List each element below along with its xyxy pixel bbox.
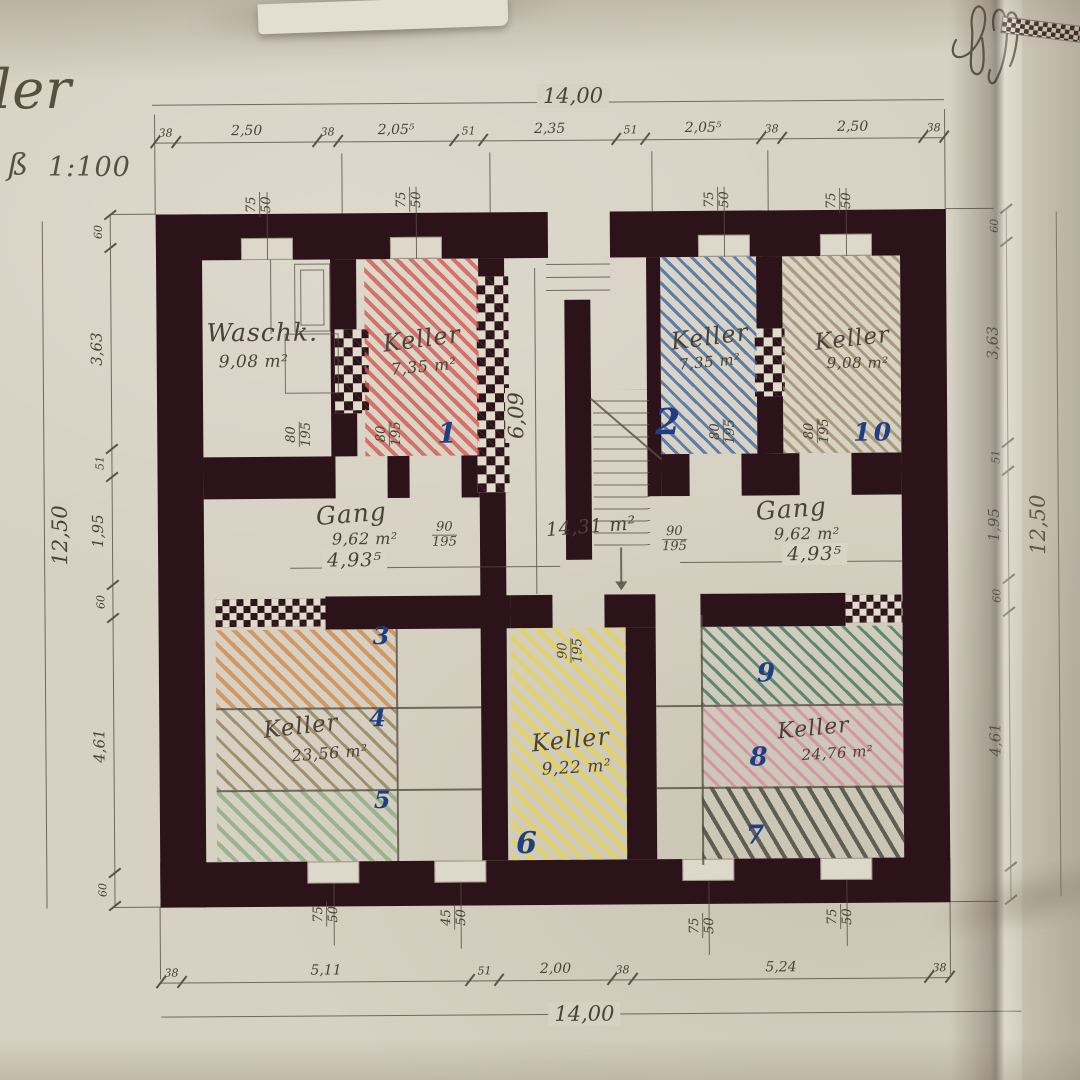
room-compartment-7-fill <box>702 785 904 858</box>
wall-mid-a <box>387 456 409 498</box>
dim-total-line-right <box>1056 211 1062 896</box>
witness-line <box>951 901 999 902</box>
dim-segment: 38 <box>929 961 950 978</box>
door-size-label: 80195 <box>375 421 405 446</box>
window-size-label: 7550 <box>688 913 718 938</box>
room-name: Gang <box>315 497 388 531</box>
wall-top-right <box>610 209 946 257</box>
window-size-label: 7550 <box>395 187 425 212</box>
dim-segment: 1,95 <box>96 477 114 585</box>
room-number: 2 <box>655 401 680 443</box>
dim-chain-right: 60 3,63 51 1,95 60 4,61 <box>990 209 1012 900</box>
window-niche <box>682 859 734 881</box>
witness-line <box>489 152 490 212</box>
dim-segment: 2,05⁵ <box>645 122 761 140</box>
room-area: 9,08 m² <box>219 352 289 372</box>
compartment-number: 7 <box>746 820 764 850</box>
door-size-label: 80195 <box>285 422 315 447</box>
gang-width-label: 4,93⁵ <box>782 543 847 565</box>
wall-mid-a <box>203 456 335 499</box>
witness-line <box>944 109 946 209</box>
window-size-label: 7550 <box>826 904 856 929</box>
stair-dim-label: 6,09 <box>505 388 528 443</box>
dim-segment: 2,50 <box>782 121 923 139</box>
dim-segment: 2,35 <box>483 123 616 141</box>
wall-mid-b <box>700 593 845 627</box>
wall-mid-b <box>325 595 510 629</box>
scanned-floor-plan-sheet: ler ß 1:100 <box>0 0 1080 1080</box>
room-area: 9,62 m² <box>774 524 840 543</box>
witness-line <box>651 151 652 211</box>
room-area: 9,08 m² <box>827 354 889 372</box>
dim-chain-bottom: 38 5,11 51 2,00 38 5,24 38 <box>161 961 950 984</box>
wall-mid-a <box>741 453 799 495</box>
dim-segment: 2,00 <box>499 964 612 982</box>
room-number: 6 <box>516 826 537 861</box>
stair-walkline <box>620 547 622 583</box>
dim-segment: 38 <box>923 121 944 138</box>
floor-plan: 6,09 Waschk. 9,08 m² Keller 7,35 m² 1 14… <box>0 0 1080 1080</box>
dim-segment: 51 <box>454 124 483 141</box>
window-niche <box>307 861 359 883</box>
compartment-number: 8 <box>749 742 767 772</box>
dim-segment: 3,63 <box>94 248 112 449</box>
dim-segment: 4,61 <box>97 618 116 873</box>
dim-segment: 2,05⁵ <box>338 125 454 143</box>
flue-block <box>476 276 510 492</box>
stair-entry-step <box>546 290 610 291</box>
room-area: 9,22 m² <box>541 756 612 780</box>
slat-wall <box>845 594 902 622</box>
dim-chain-left: 60 3,63 51 1,95 60 4,61 60 <box>94 215 116 906</box>
dim-segment: 38 <box>161 967 182 984</box>
dim-total-left: 12,50 <box>50 499 72 571</box>
room-number: 10 <box>853 418 894 447</box>
stair-entry-step <box>546 264 610 265</box>
door-size-label: 80195 <box>803 418 833 443</box>
room-area: 9,62 m² <box>332 529 398 548</box>
door-size-label: 90195 <box>432 521 457 551</box>
room-compartment-3-fill <box>216 629 397 708</box>
dim-segment: 2,50 <box>176 126 317 144</box>
dim-segment: 60 <box>990 209 1007 242</box>
room-compartment-9-fill <box>701 625 904 704</box>
dim-total-bottom: 14,00 <box>548 1001 620 1026</box>
dim-segment: 60 <box>94 215 111 248</box>
window-size-label: 7550 <box>703 187 733 212</box>
wall-mid-a <box>661 454 689 496</box>
witness-line <box>767 150 768 210</box>
window-niche <box>434 860 486 882</box>
dim-segment: 5,11 <box>182 964 470 983</box>
dim-segment: 60 <box>992 579 1009 612</box>
stair-entry-step <box>546 277 610 278</box>
room-compartment-5-fill <box>217 789 397 862</box>
dim-segment: 38 <box>317 125 338 142</box>
stair-dim-line <box>534 268 537 594</box>
wall-right <box>900 209 951 902</box>
window-niche <box>820 858 872 880</box>
dim-segment: 5,24 <box>633 961 929 980</box>
dim-total-right: 12,50 <box>1028 488 1050 560</box>
witness-line <box>110 214 156 215</box>
wall-left <box>156 214 207 907</box>
door-size-label: 80195 <box>709 419 739 444</box>
dim-total-top: 14,00 <box>537 84 609 109</box>
dim-segment: 38 <box>612 963 633 980</box>
dim-segment: 4,61 <box>993 612 1012 867</box>
compartment-number: 4 <box>369 703 386 732</box>
dim-segment: 1,95 <box>992 471 1010 579</box>
slat-wall <box>215 598 325 627</box>
wall-mid-b <box>604 594 655 627</box>
window-size-label: 4550 <box>440 905 470 930</box>
dim-segment: 51 <box>616 123 645 140</box>
gang-width-label: 4,93⁵ <box>322 549 387 571</box>
dim-segment: 38 <box>761 122 782 139</box>
compartment-line <box>396 629 399 861</box>
dim-segment <box>994 867 1011 900</box>
stair-walkline-arrow <box>615 581 627 590</box>
witness-line <box>341 153 342 213</box>
dim-segment: 51 <box>95 449 112 477</box>
dim-segment: 38 <box>155 127 176 144</box>
dim-segment: 51 <box>991 443 1008 471</box>
witness-line <box>946 208 994 209</box>
wall-mid-b <box>510 595 552 628</box>
wall-mid-a <box>851 452 901 494</box>
compartment-number: 5 <box>374 785 391 814</box>
dim-chain-top: 38 2,50 38 2,05⁵ 51 2,35 51 2,05⁵ 38 2,5… <box>155 121 944 144</box>
door-size-label: 90195 <box>662 525 687 555</box>
window-size-label: 7550 <box>825 188 855 213</box>
dim-segment: 60 <box>96 585 113 618</box>
dim-total-line-left <box>42 221 48 908</box>
room-name: Waschk. <box>206 318 318 348</box>
compartment-number: 3 <box>373 621 390 650</box>
wall-keller6-right <box>626 627 658 859</box>
witness-line <box>115 907 161 908</box>
dim-segment: 60 <box>98 873 115 906</box>
compartment-number: 9 <box>757 658 775 688</box>
room-name: Gang <box>755 492 828 526</box>
door-size-label: 90195 <box>556 638 586 663</box>
dim-segment: 3,63 <box>990 242 1008 443</box>
wall-top-left <box>156 212 548 261</box>
window-size-label: 7550 <box>312 902 342 927</box>
room-number: 1 <box>437 417 457 450</box>
flue-block <box>755 328 785 396</box>
dim-segment: 51 <box>470 964 499 981</box>
window-size-label: 7550 <box>245 192 275 217</box>
